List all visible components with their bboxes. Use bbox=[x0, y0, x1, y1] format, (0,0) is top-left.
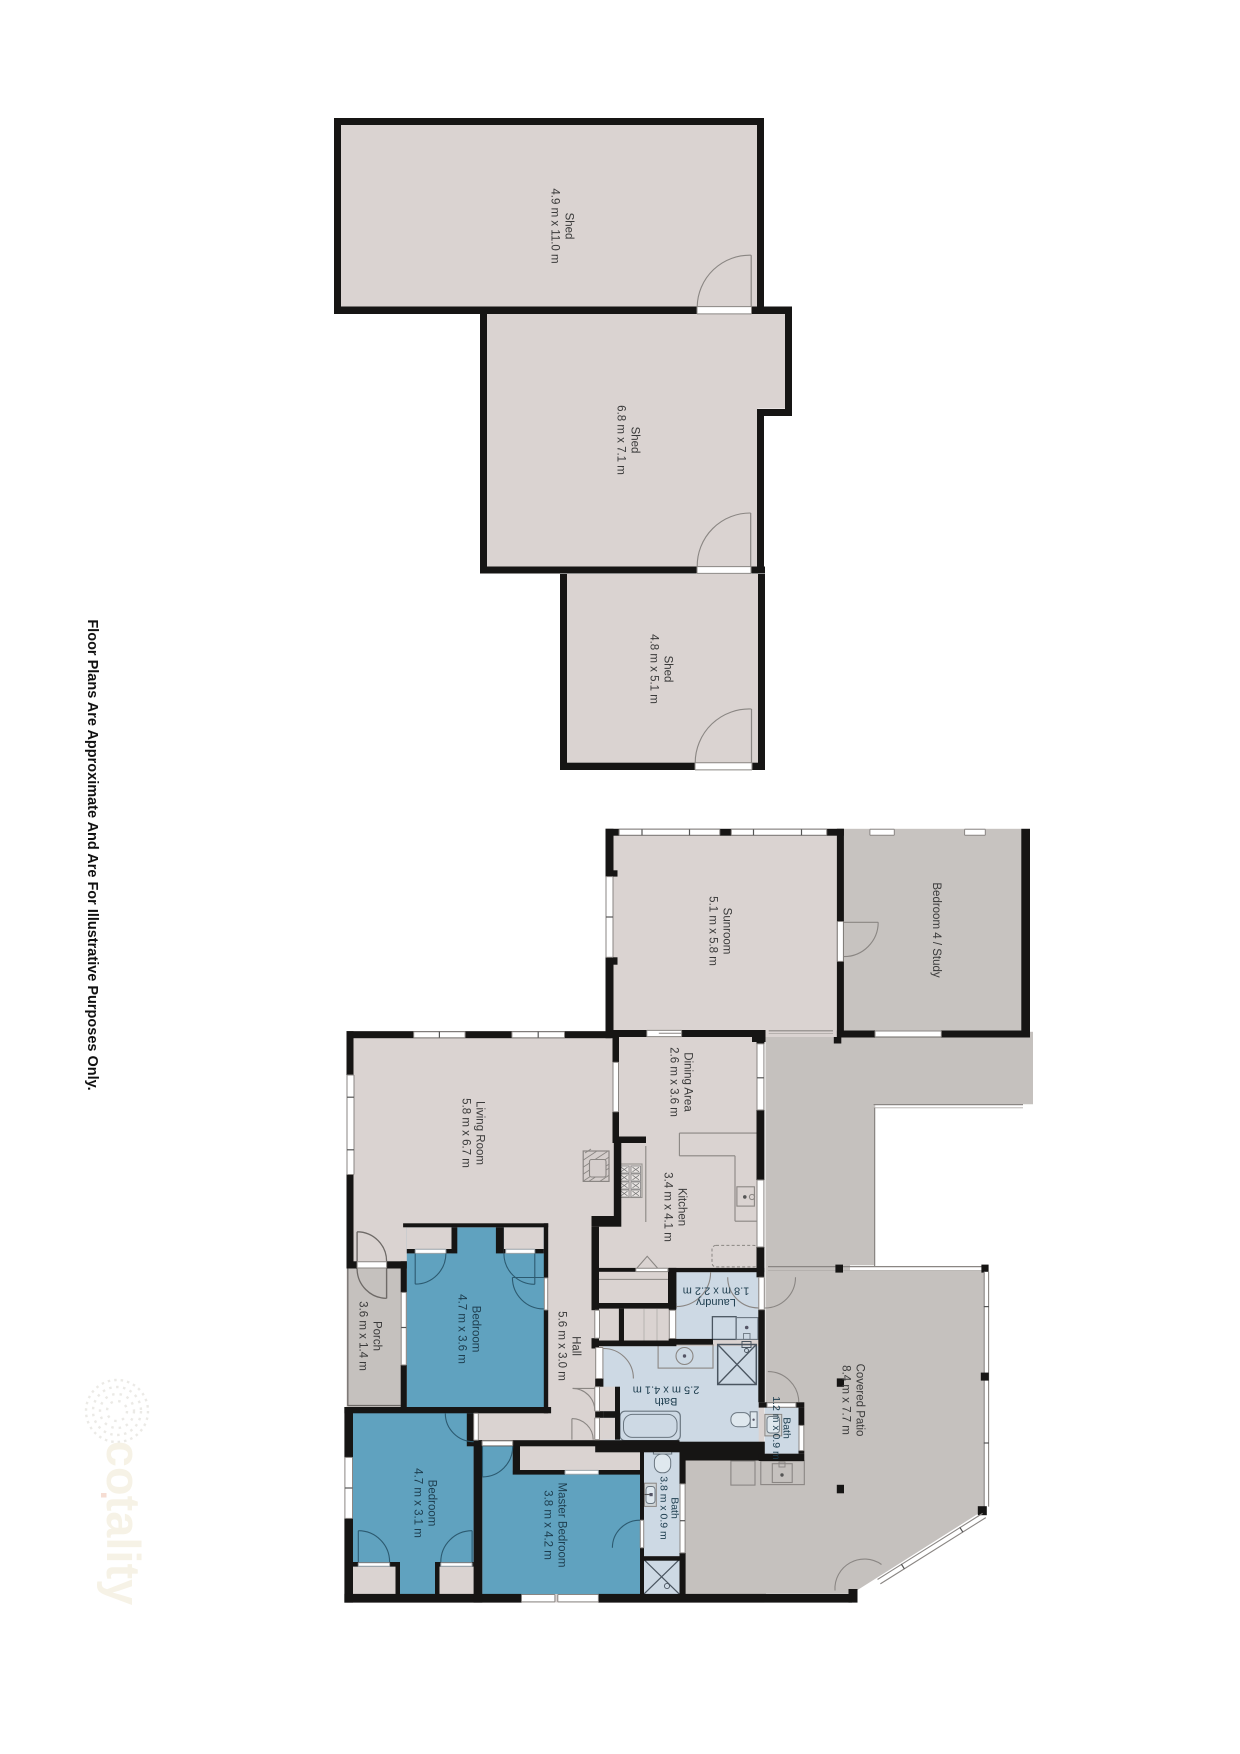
svg-text:Bath: Bath bbox=[655, 1395, 678, 1407]
svg-text:Bedroom 4 / Study: Bedroom 4 / Study bbox=[930, 882, 942, 977]
svg-text:1.8 m x 2.2 m: 1.8 m x 2.2 m bbox=[683, 1285, 750, 1297]
svg-text:3.8 m x 0.9 m: 3.8 m x 0.9 m bbox=[658, 1476, 670, 1540]
svg-text:Shed: Shed bbox=[563, 213, 575, 240]
svg-text:Laundry: Laundry bbox=[696, 1296, 736, 1308]
svg-text:Shed: Shed bbox=[662, 656, 674, 683]
svg-text:3.8 m x 4.2 m: 3.8 m x 4.2 m bbox=[542, 1490, 554, 1560]
svg-text:Sunroom: Sunroom bbox=[721, 908, 733, 955]
svg-text:4.7 m x 3.6 m: 4.7 m x 3.6 m bbox=[456, 1294, 468, 1364]
svg-text:2.6 m x 3.6 m: 2.6 m x 3.6 m bbox=[668, 1047, 680, 1117]
svg-text:4.8 m x 5.1 m: 4.8 m x 5.1 m bbox=[648, 634, 660, 704]
svg-text:Living Room: Living Room bbox=[474, 1101, 486, 1165]
svg-text:3.4 m x 4.1 m: 3.4 m x 4.1 m bbox=[662, 1172, 674, 1242]
svg-text:Bedroom: Bedroom bbox=[426, 1480, 438, 1527]
svg-text:4.7 m x 3.1 m: 4.7 m x 3.1 m bbox=[412, 1468, 424, 1538]
svg-text:Covered Patio: Covered Patio bbox=[854, 1364, 866, 1437]
svg-text:4.9 m x 11.0 m: 4.9 m x 11.0 m bbox=[549, 188, 561, 263]
svg-text:3.6 m x 1.4 m: 3.6 m x 1.4 m bbox=[357, 1301, 369, 1371]
svg-text:Master Bedroom: Master Bedroom bbox=[556, 1482, 568, 1567]
svg-text:5.8 m x 6.7 m: 5.8 m x 6.7 m bbox=[460, 1098, 472, 1168]
svg-text:8.4 m x 7.7 m: 8.4 m x 7.7 m bbox=[840, 1365, 852, 1435]
svg-text:5.6 m x 3.0 m: 5.6 m x 3.0 m bbox=[556, 1311, 568, 1381]
svg-text:Dining Area: Dining Area bbox=[682, 1052, 694, 1112]
svg-text:Hall: Hall bbox=[570, 1336, 582, 1356]
svg-text:Floor Plans Are Approximate An: Floor Plans Are Approximate And Are For … bbox=[84, 619, 100, 1090]
svg-text:1.2 m x 0.9 m: 1.2 m x 0.9 m bbox=[770, 1396, 782, 1460]
svg-text:Kitchen: Kitchen bbox=[676, 1188, 688, 1226]
svg-text:5.1 m x 5.8 m: 5.1 m x 5.8 m bbox=[707, 896, 719, 966]
svg-text:6.8 m x 7.1 m: 6.8 m x 7.1 m bbox=[615, 405, 627, 475]
svg-text:cotality: cotality bbox=[97, 1441, 150, 1606]
svg-text:Bedroom: Bedroom bbox=[470, 1306, 482, 1353]
svg-text:Shed: Shed bbox=[629, 427, 641, 454]
svg-text:2.5 m x 4.1 m: 2.5 m x 4.1 m bbox=[633, 1384, 700, 1396]
svg-text:Porch: Porch bbox=[371, 1321, 383, 1351]
